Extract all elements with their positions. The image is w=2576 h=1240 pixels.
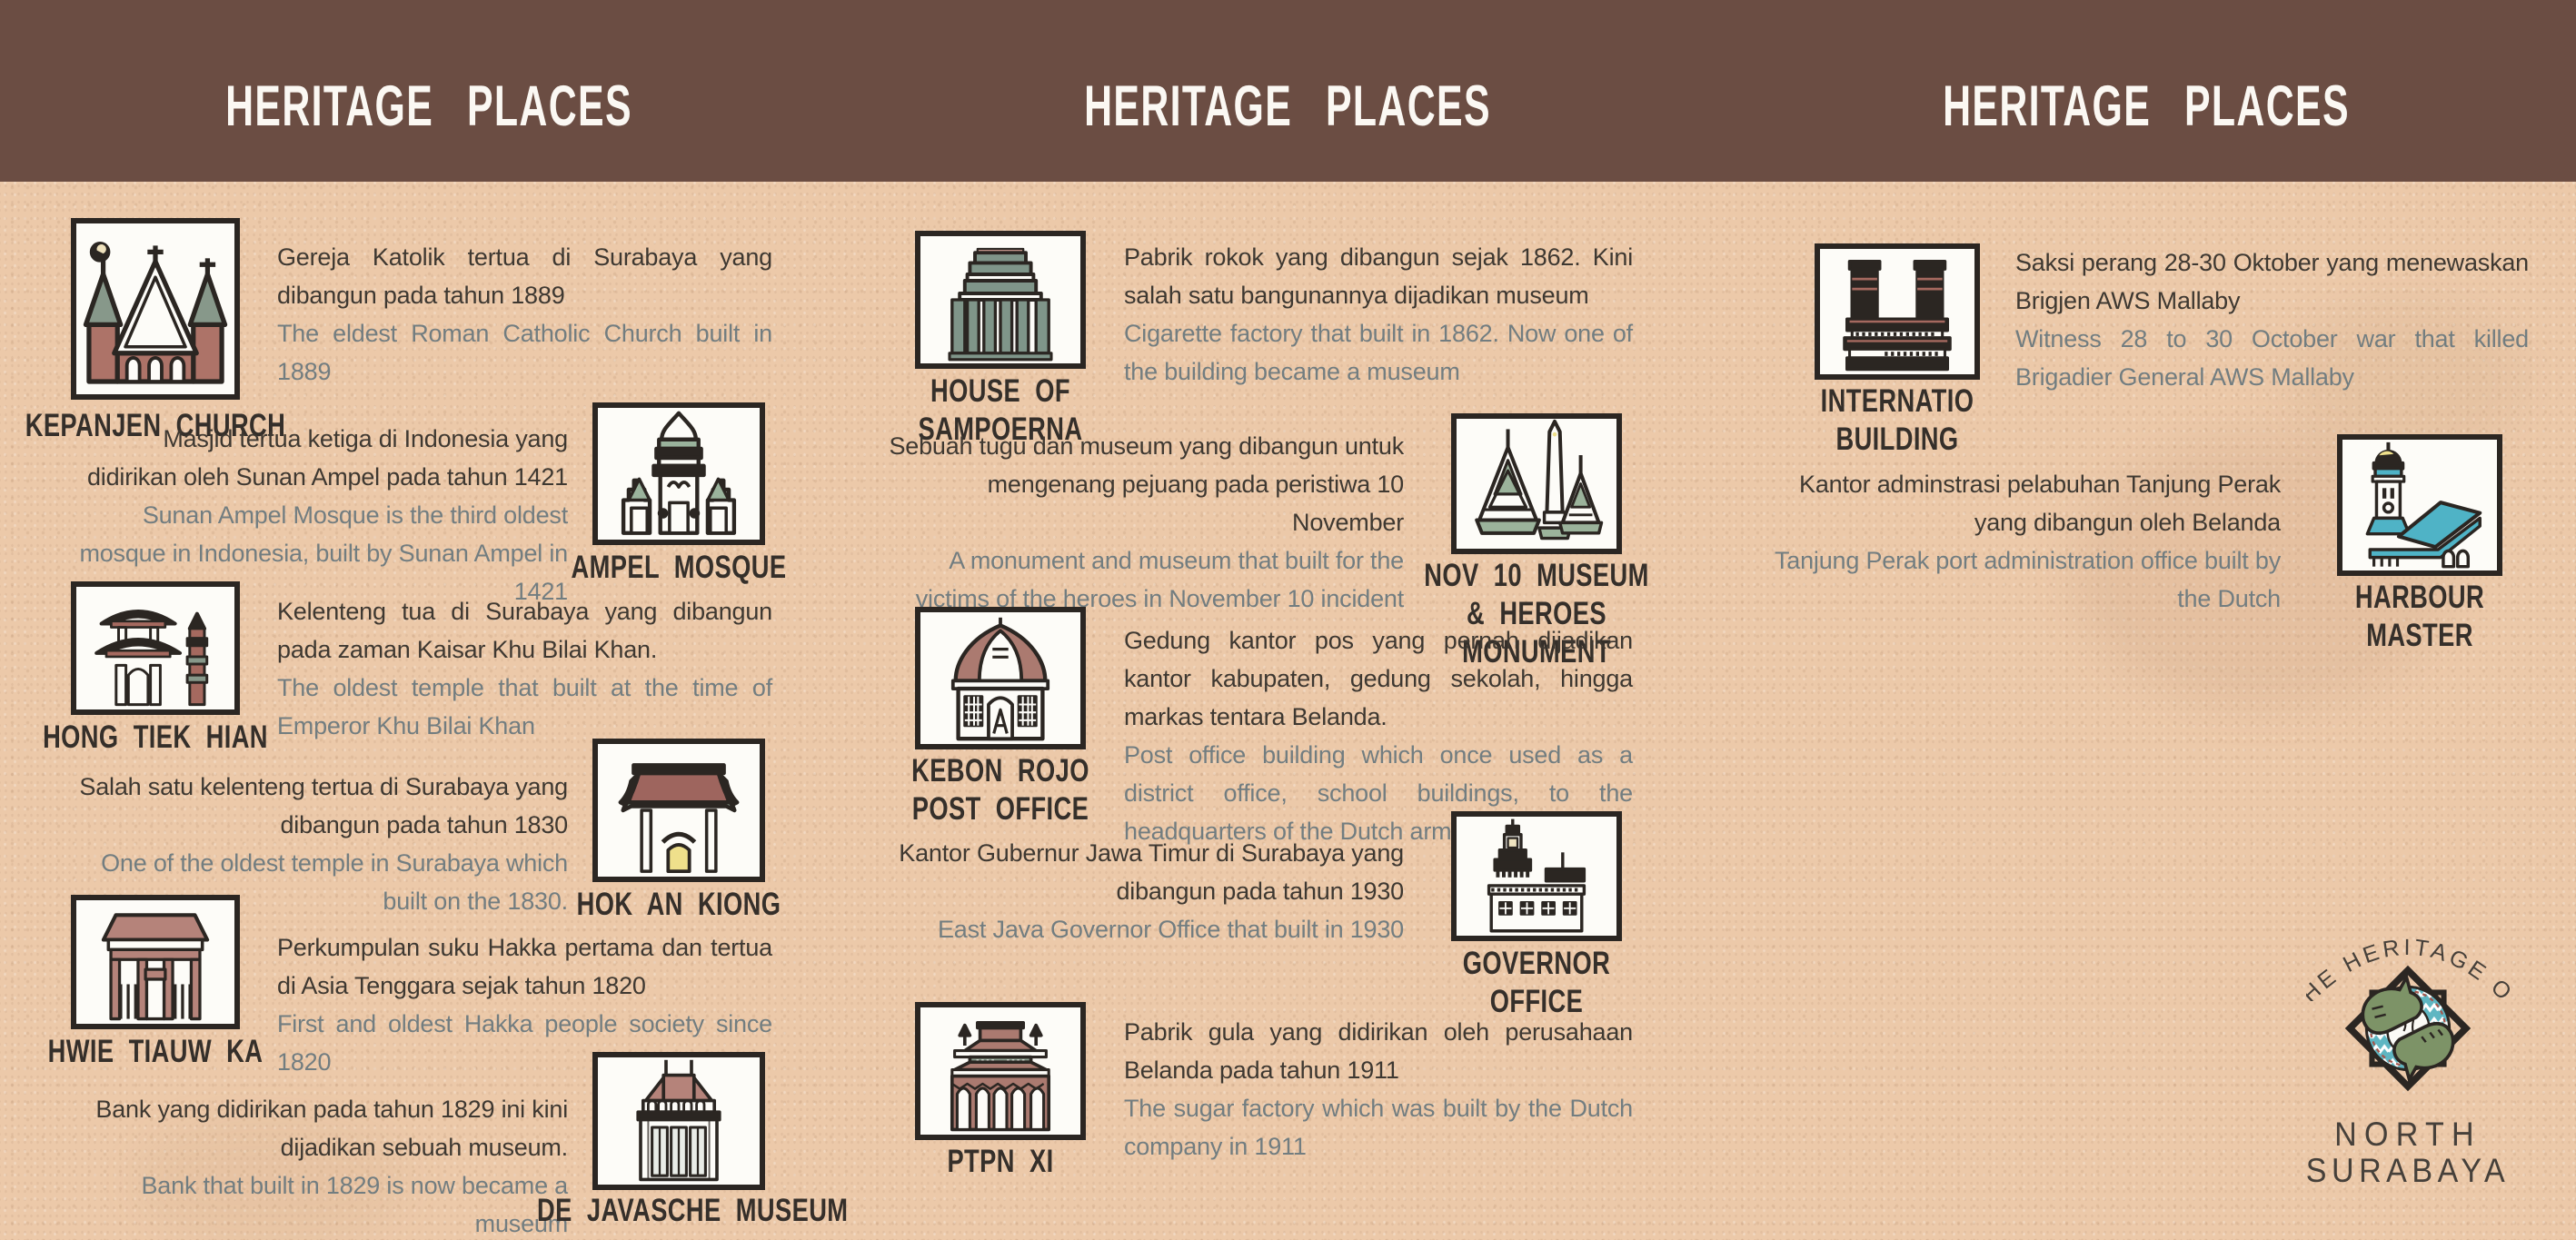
kebon-rojo-post-office-label: KEBON ROJO POST OFFICE (909, 752, 1093, 828)
nov-10-museum-icon (1457, 419, 1616, 549)
hong-tiek-hian-icon-frame (71, 581, 240, 715)
desc-indonesian: Sebuah tugu dan museum yang dibangun unt… (872, 427, 1404, 541)
harbour-master-icon-frame (2337, 434, 2502, 576)
kepanjen-church-text: Gereja Katolik tertua di Surabaya yang d… (277, 238, 772, 391)
desc-english: The eldest Roman Catholic Church built i… (277, 314, 772, 391)
nov-10-museum-icon-frame (1451, 413, 1622, 554)
hong-tiek-hian-label: HONG TIEK HIAN (14, 719, 297, 757)
internatio-building-icon (1820, 249, 1974, 374)
governor-office-icon-frame (1451, 811, 1622, 941)
desc-indonesian: Masjid tertua ketiga di Indonesia yang d… (73, 420, 568, 496)
desc-english: East Java Governor Office that built in … (872, 910, 1404, 948)
de-javasche-museum-icon (598, 1057, 760, 1185)
header-band: HERITAGE PLACES HERITAGE PLACES HERITAGE… (0, 0, 2576, 182)
harbour-master-icon (2342, 440, 2497, 570)
governor-office-text: Kantor Gubernur Jawa Timur di Surabaya y… (872, 834, 1404, 948)
hwie-tiauw-ka-label: HWIE TIAUW KA (14, 1033, 297, 1071)
hwie-tiauw-ka-icon (76, 900, 234, 1024)
internatio-building-text: Saksi perang 28-30 Oktober yang menewask… (2015, 243, 2529, 396)
kebon-rojo-post-office-icon (920, 612, 1080, 744)
brochure-sheet: HERITAGE PLACES HERITAGE PLACES HERITAGE… (0, 0, 2576, 1240)
hok-an-kiong-icon-frame (592, 739, 765, 882)
ampel-mosque-label: AMPEL MOSQUE (537, 549, 821, 587)
desc-indonesian: Pabrik rokok yang dibangun sejak 1862. K… (1124, 238, 1633, 314)
desc-indonesian: Gereja Katolik tertua di Surabaya yang d… (277, 238, 772, 314)
desc-indonesian: Saksi perang 28-30 Oktober yang menewask… (2015, 243, 2529, 320)
nov-10-museum-text: Sebuah tugu dan museum yang dibangun unt… (872, 427, 1404, 618)
de-javasche-museum-icon-frame (592, 1052, 765, 1190)
ptpn-xi-label: PTPN XI (859, 1143, 1142, 1181)
hwie-tiauw-ka-icon-frame (71, 895, 240, 1029)
internatio-building-label: INTERNATIO BUILDING (1809, 382, 1986, 459)
harbour-master-text: Kantor adminstrasi pelabuhan Tanjung Per… (1763, 465, 2281, 618)
governor-office-label: GOVERNOR OFFICE (1455, 945, 1617, 1021)
house-of-sampoerna-icon-frame (915, 231, 1086, 369)
desc-indonesian: Kantor adminstrasi pelabuhan Tanjung Per… (1763, 465, 2281, 541)
desc-english: Bank that built in 1829 is now became a … (73, 1166, 568, 1240)
desc-indonesian: Salah satu kelenteng tertua di Surabaya … (73, 768, 568, 844)
de-javasche-museum-label: DE JAVASCHE MUSEUM (537, 1192, 821, 1230)
desc-english: The sugar factory which was built by the… (1124, 1089, 1633, 1166)
desc-indonesian: Perkumpulan suku Hakka pertama dan tertu… (277, 928, 772, 1005)
ptpn-xi-icon (920, 1007, 1080, 1135)
logo-title-line1: NORTH (2241, 1116, 2575, 1154)
desc-indonesian: Gedung kantor pos yang pernah dijadikan … (1124, 621, 1633, 736)
hong-tiek-hian-icon (76, 587, 234, 709)
ptpn-xi-icon-frame (915, 1002, 1086, 1140)
kebon-rojo-post-office-icon-frame (915, 607, 1086, 749)
desc-indonesian: Kantor Gubernur Jawa Timur di Surabaya y… (872, 834, 1404, 910)
de-javasche-museum-text: Bank yang didirikan pada tahun 1829 ini … (73, 1090, 568, 1240)
ampel-mosque-icon-frame (592, 402, 765, 545)
desc-indonesian: Pabrik gula yang didirikan oleh perusaha… (1124, 1013, 1633, 1089)
harbour-master-label: HARBOUR MASTER (2345, 579, 2494, 655)
hok-an-kiong-icon (598, 744, 760, 877)
ampel-mosque-icon (598, 408, 760, 540)
desc-indonesian: Bank yang didirikan pada tahun 1829 ini … (73, 1090, 568, 1166)
governor-office-icon (1457, 817, 1616, 936)
north-surabaya-emblem (2339, 959, 2477, 1097)
desc-indonesian: Kelenteng tua di Surabaya yang dibangun … (277, 592, 772, 669)
logo-title-line2: SURABAYA (2241, 1152, 2575, 1190)
kepanjen-church-icon-frame (71, 218, 240, 400)
desc-english: Tanjung Perak port administration office… (1763, 541, 2281, 618)
hok-an-kiong-label: HOK AN KIONG (537, 886, 821, 924)
kepanjen-church-icon (76, 223, 234, 394)
desc-english: Witness 28 to 30 October war that killed… (2015, 320, 2529, 396)
ptpn-xi-text: Pabrik gula yang didirikan oleh perusaha… (1124, 1013, 1633, 1166)
internatio-building-icon-frame (1815, 243, 1980, 380)
house-of-sampoerna-text: Pabrik rokok yang dibangun sejak 1862. K… (1124, 238, 1633, 391)
desc-english: Cigarette factory that built in 1862. No… (1124, 314, 1633, 391)
house-of-sampoerna-icon (920, 236, 1080, 363)
desc-english: The oldest temple that built at the time… (277, 669, 772, 745)
hong-tiek-hian-text: Kelenteng tua di Surabaya yang dibangun … (277, 592, 772, 745)
